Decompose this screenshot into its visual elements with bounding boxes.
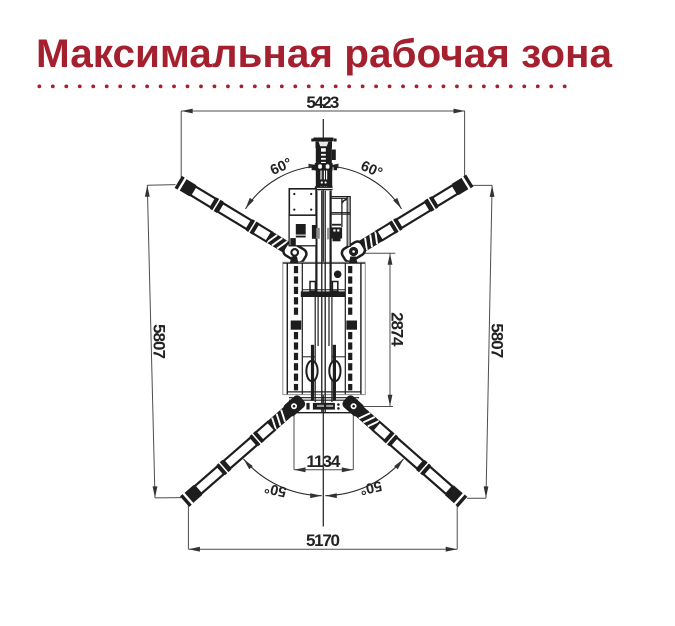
svg-text:50°: 50°	[358, 477, 383, 498]
svg-text:2874: 2874	[387, 312, 406, 347]
svg-text:Максимальная рабочая зона: Максимальная рабочая зона	[36, 32, 613, 76]
svg-text:60°: 60°	[358, 158, 385, 182]
svg-text:5807: 5807	[488, 323, 507, 358]
svg-text:5423: 5423	[306, 93, 339, 112]
svg-text:60°: 60°	[268, 155, 295, 179]
svg-text:5807: 5807	[150, 324, 169, 359]
svg-text:5170: 5170	[306, 531, 340, 550]
svg-text:50°: 50°	[263, 479, 288, 500]
